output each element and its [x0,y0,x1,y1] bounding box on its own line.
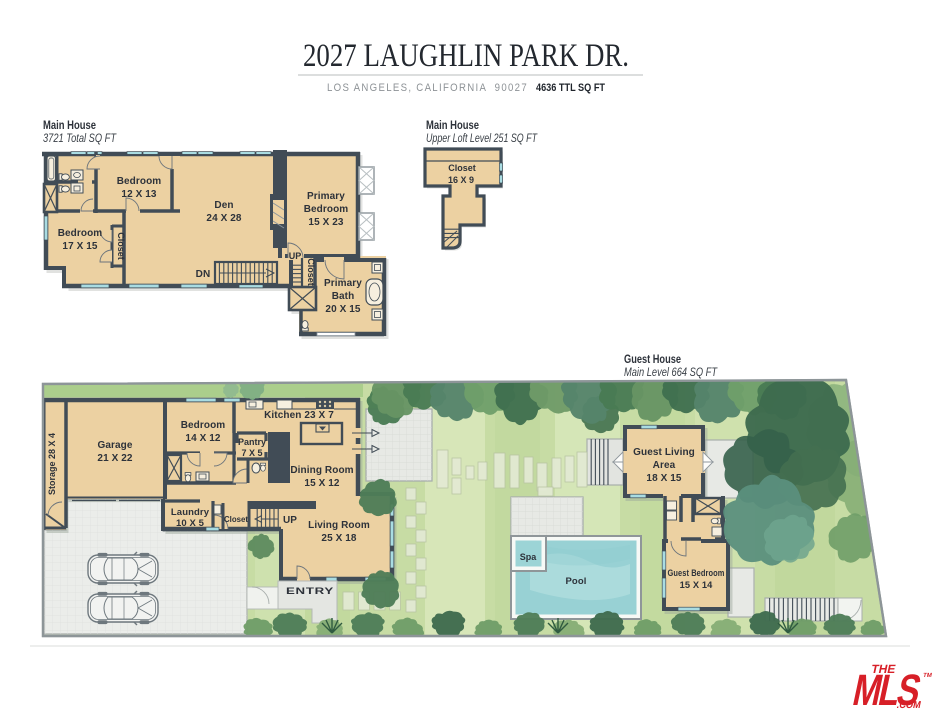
svg-text:Guest House: Guest House [624,354,681,366]
svg-text:UP: UP [283,515,297,526]
svg-text:Bedroom: Bedroom [181,420,226,431]
svg-text:Bedroom: Bedroom [304,204,349,215]
svg-text:Dining Room: Dining Room [290,465,353,476]
svg-text:21 X 22: 21 X 22 [97,453,133,464]
svg-text:Upper Loft Level 251 SQ FT: Upper Loft Level 251 SQ FT [426,133,538,145]
svg-text:Spa: Spa [520,552,538,562]
svg-text:Den: Den [214,200,233,211]
svg-text:Laundry: Laundry [171,507,210,518]
svg-text:Closet: Closet [448,163,476,173]
svg-text:Guest Living: Guest Living [633,447,695,458]
svg-text:15 X 23: 15 X 23 [308,217,344,228]
svg-text:Main House: Main House [43,120,96,132]
svg-text:Pool: Pool [566,576,587,587]
svg-text:15 X 14: 15 X 14 [680,580,713,590]
svg-text:Closet: Closet [224,514,248,524]
svg-text:Primary: Primary [307,191,345,202]
svg-text:25 X 18: 25 X 18 [321,533,357,544]
svg-text:Main House: Main House [426,120,479,132]
svg-text:Main Level 664 SQ FT: Main Level 664 SQ FT [624,367,718,379]
svg-text:14 X 12: 14 X 12 [185,433,221,444]
svg-text:TM: TM [922,673,932,679]
svg-text:15 X 12: 15 X 12 [304,478,340,489]
svg-text:.COM: .COM [896,700,922,711]
svg-text:Closet: Closet [306,258,316,286]
svg-text:Bedroom: Bedroom [117,176,162,187]
svg-text:2027 LAUGHLIN PARK DR.: 2027 LAUGHLIN PARK DR. [303,38,629,74]
svg-text:DN: DN [196,269,211,280]
svg-text:Living Room: Living Room [308,520,370,531]
svg-text:16 X 9: 16 X 9 [448,175,474,185]
svg-text:12 X 13: 12 X 13 [121,189,157,200]
svg-text:17 X 15: 17 X 15 [62,241,98,252]
svg-text:Bath: Bath [332,291,355,302]
svg-text:24 X 28: 24 X 28 [206,213,242,224]
svg-text:Closet: Closet [116,232,126,260]
svg-text:7 X 5: 7 X 5 [241,448,262,458]
svg-text:Guest Bedroom: Guest Bedroom [668,568,725,578]
svg-text:Bedroom: Bedroom [58,228,103,239]
svg-text:UP: UP [289,251,302,261]
svg-text:Garage: Garage [97,440,132,451]
svg-text:Kitchen 23 X 7: Kitchen 23 X 7 [264,410,334,421]
svg-text:ENTRY: ENTRY [286,586,334,597]
svg-text:3721 Total SQ FT: 3721 Total SQ FT [43,133,117,145]
svg-text:Storage 28 X 4: Storage 28 X 4 [47,433,57,495]
svg-text:20 X 15: 20 X 15 [325,304,361,315]
svg-text:4636 TTL SQ FT: 4636 TTL SQ FT [536,82,605,94]
svg-text:Area: Area [653,460,676,471]
svg-text:10 X 5: 10 X 5 [176,518,205,529]
svg-text:LOS ANGELES, CALIFORNIA 90027: LOS ANGELES, CALIFORNIA 90027 [327,82,528,94]
svg-text:Primary: Primary [324,278,362,289]
svg-text:Pantry: Pantry [238,437,266,447]
svg-text:18 X 15: 18 X 15 [646,473,682,484]
